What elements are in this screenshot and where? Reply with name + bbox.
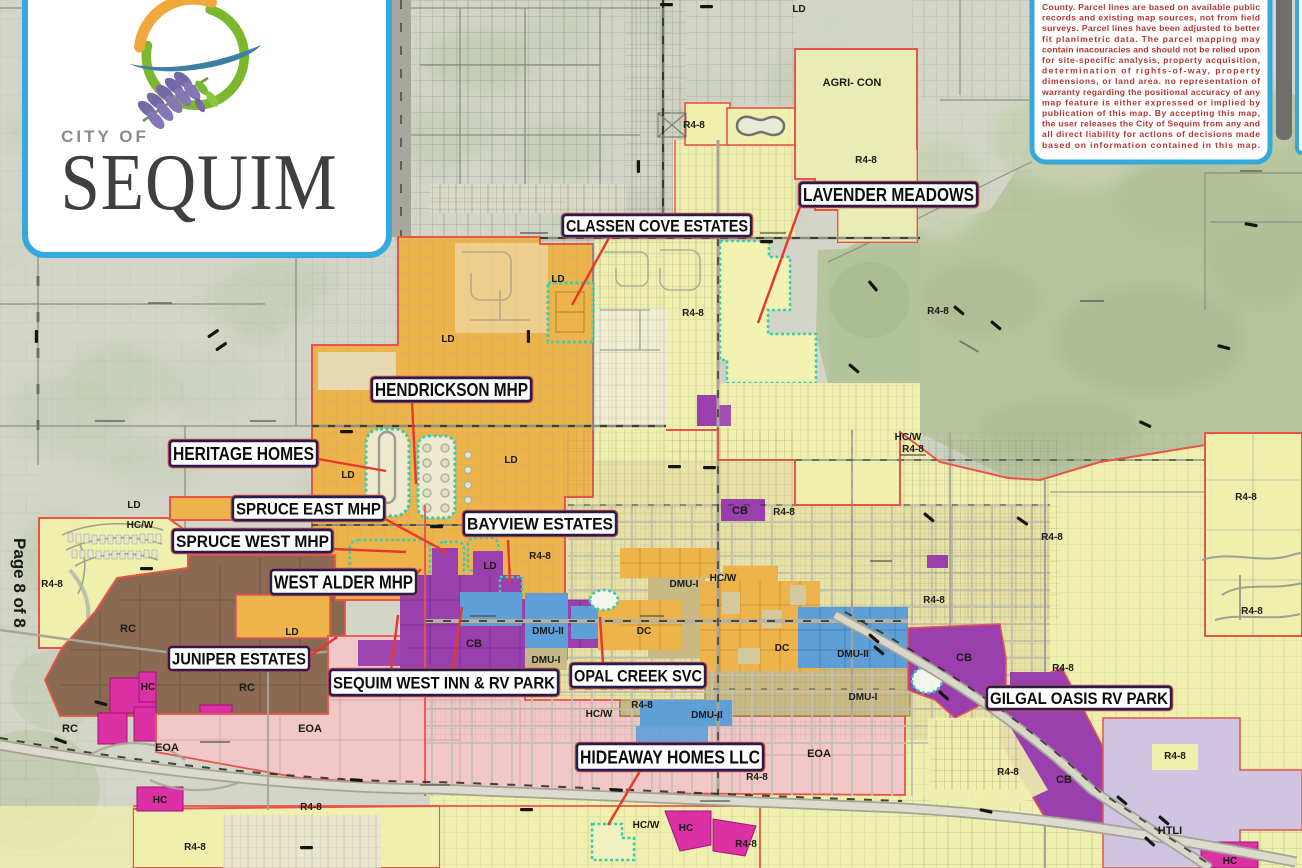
svg-text:RC: RC bbox=[239, 682, 255, 694]
svg-text:LD: LD bbox=[441, 334, 454, 345]
svg-text:HERITAGE HOMES: HERITAGE HOMES bbox=[173, 444, 314, 464]
svg-text:LD: LD bbox=[285, 627, 298, 638]
svg-text:EOA: EOA bbox=[298, 723, 322, 735]
svg-text:LD: LD bbox=[341, 470, 354, 481]
svg-text:R4-8: R4-8 bbox=[683, 120, 705, 131]
svg-text:R4-8: R4-8 bbox=[1041, 532, 1063, 543]
svg-text:WEST ALDER MHP: WEST ALDER MHP bbox=[274, 572, 413, 592]
svg-text:SEQUIM WEST INN & RV PARK: SEQUIM WEST INN & RV PARK bbox=[333, 674, 556, 693]
svg-text:R4-8: R4-8 bbox=[927, 306, 949, 317]
svg-text:R4-8: R4-8 bbox=[631, 700, 653, 711]
svg-text:LD: LD bbox=[504, 455, 517, 466]
svg-text:EOA: EOA bbox=[155, 742, 179, 754]
svg-text:HC: HC bbox=[153, 795, 167, 806]
svg-text:HC: HC bbox=[1223, 856, 1237, 867]
svg-text:HENDRICKSON MHP: HENDRICKSON MHP bbox=[375, 380, 528, 400]
svg-text:LD: LD bbox=[483, 561, 496, 572]
svg-text:HC/W: HC/W bbox=[586, 709, 613, 720]
svg-text:HC/W: HC/W bbox=[895, 432, 922, 443]
svg-text:HC/W: HC/W bbox=[127, 520, 154, 531]
svg-text:R4-8: R4-8 bbox=[923, 595, 945, 606]
svg-text:HC/W: HC/W bbox=[710, 573, 737, 584]
svg-text:CLASSEN COVE ESTATES: CLASSEN COVE ESTATES bbox=[566, 217, 748, 236]
svg-text:DC: DC bbox=[775, 643, 789, 654]
svg-text:LAVENDER MEADOWS: LAVENDER MEADOWS bbox=[803, 185, 974, 205]
svg-text:County. Parcel lines are base: County. Parcel lines are based on availa… bbox=[1041, 2, 1261, 150]
svg-text:DMU-I: DMU-I bbox=[670, 579, 699, 590]
svg-text:DMU-I: DMU-I bbox=[849, 692, 878, 703]
svg-text:DMU-I: DMU-I bbox=[532, 655, 561, 666]
svg-text:JUNIPER ESTATES: JUNIPER ESTATES bbox=[172, 650, 306, 669]
svg-text:LD: LD bbox=[127, 500, 140, 511]
svg-text:GILGAL OASIS RV PARK: GILGAL OASIS RV PARK bbox=[990, 689, 1169, 708]
svg-text:R4-8: R4-8 bbox=[735, 839, 757, 850]
svg-text:R4-8: R4-8 bbox=[1235, 492, 1257, 503]
svg-text:HC: HC bbox=[141, 682, 155, 693]
svg-text:HTLI: HTLI bbox=[1158, 825, 1182, 837]
svg-text:DMU-II: DMU-II bbox=[837, 649, 869, 660]
svg-text:RC: RC bbox=[120, 623, 136, 635]
svg-text:R4-8: R4-8 bbox=[184, 842, 206, 853]
svg-text:R4-8: R4-8 bbox=[902, 444, 924, 455]
svg-text:RC: RC bbox=[62, 723, 78, 735]
svg-text:HC/W: HC/W bbox=[633, 820, 660, 831]
svg-text:DC: DC bbox=[637, 626, 651, 637]
svg-text:CB: CB bbox=[956, 652, 972, 664]
svg-text:R4-8: R4-8 bbox=[855, 155, 877, 166]
svg-text:DMU-II: DMU-II bbox=[532, 626, 564, 637]
svg-text:HIDEAWAY HOMES LLC: HIDEAWAY HOMES LLC bbox=[580, 747, 760, 767]
svg-text:SEQUIM: SEQUIM bbox=[61, 139, 338, 227]
svg-text:R4-8: R4-8 bbox=[682, 308, 704, 319]
svg-text:DMU-II: DMU-II bbox=[691, 710, 723, 721]
svg-text:LD: LD bbox=[551, 274, 564, 285]
svg-text:HC: HC bbox=[679, 823, 693, 834]
svg-text:BAYVIEW ESTATES: BAYVIEW ESTATES bbox=[467, 515, 613, 534]
svg-text:R4-8: R4-8 bbox=[997, 767, 1019, 778]
svg-text:EOA: EOA bbox=[807, 748, 831, 760]
svg-text:R4-8: R4-8 bbox=[1164, 751, 1186, 762]
svg-text:R4-8: R4-8 bbox=[1241, 606, 1263, 617]
svg-text:CB: CB bbox=[466, 638, 482, 650]
svg-text:CB: CB bbox=[732, 505, 748, 517]
svg-text:Page 8 of 8: Page 8 of 8 bbox=[10, 538, 29, 628]
svg-text:OPAL CREEK SVC: OPAL CREEK SVC bbox=[574, 667, 702, 686]
svg-text:R4-8: R4-8 bbox=[1052, 663, 1074, 674]
svg-text:LD: LD bbox=[792, 4, 805, 15]
svg-text:AGRI- CON: AGRI- CON bbox=[823, 77, 882, 89]
svg-text:R4-8: R4-8 bbox=[300, 802, 322, 813]
svg-text:CB: CB bbox=[1056, 774, 1072, 786]
svg-text:R4-8: R4-8 bbox=[746, 772, 768, 783]
svg-text:R4-8: R4-8 bbox=[529, 551, 551, 562]
svg-text:SPRUCE EAST MHP: SPRUCE EAST MHP bbox=[236, 500, 381, 519]
svg-text:SPRUCE WEST MHP: SPRUCE WEST MHP bbox=[176, 532, 329, 551]
svg-text:R4-8: R4-8 bbox=[41, 579, 63, 590]
svg-text:R4-8: R4-8 bbox=[773, 507, 795, 518]
